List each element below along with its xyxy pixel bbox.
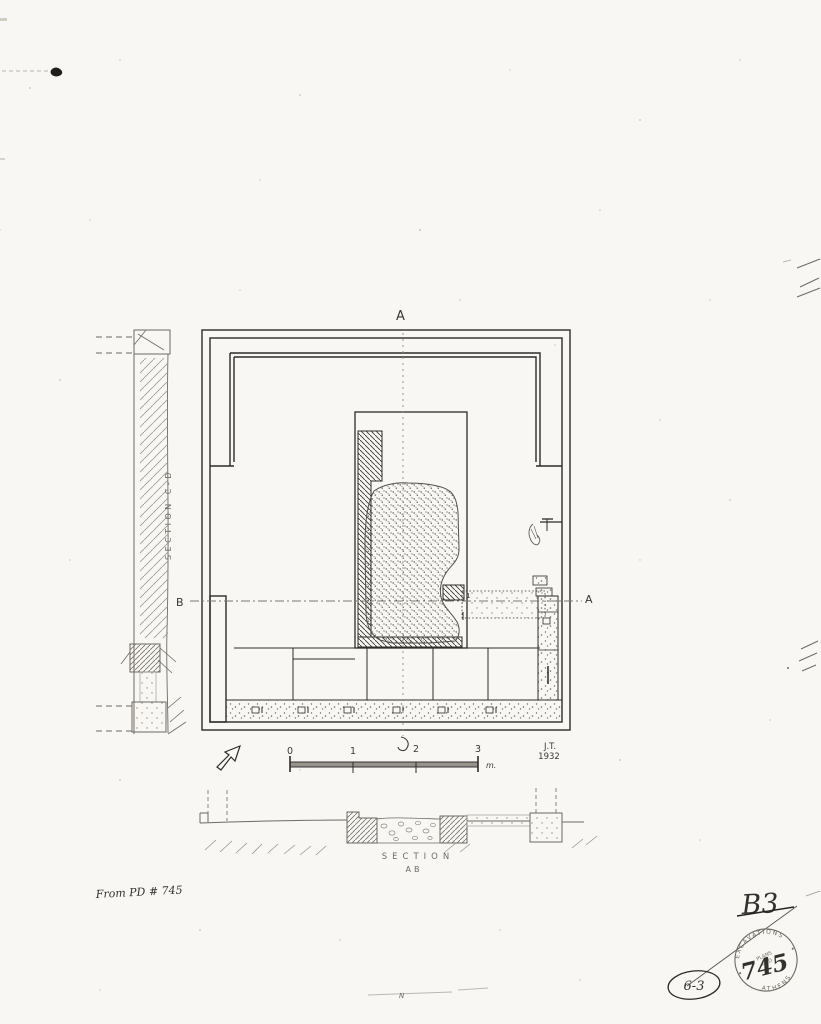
bottom-section-title: SECTION [382, 852, 454, 862]
circled-code-text: 6-3 [684, 979, 705, 994]
north-arrow-icon [217, 746, 240, 770]
hatched-notch [443, 585, 464, 600]
n-mark: N [399, 992, 405, 1000]
rubble-fill [381, 821, 435, 840]
source-note: From PD # 745 [94, 883, 182, 901]
scale-tick-1: 1 [350, 746, 356, 757]
bottom-section-subtitle: AB [406, 865, 423, 874]
drawing-year: 1932 [538, 752, 560, 762]
scale-tick-3: 3 [475, 744, 481, 755]
page-code: B3 [740, 888, 780, 921]
scale-tick-0: 0 [287, 746, 293, 757]
restored-block-outline [462, 591, 545, 618]
floor-slabs [234, 648, 540, 700]
plumb-hook-icon [398, 737, 408, 751]
small-block-a [533, 576, 547, 585]
bedrock-outcrop [365, 483, 459, 643]
scanned-drawing-page: 1 A B A [0, 0, 821, 1024]
signature: J.T. 1932 [538, 742, 560, 762]
central-monument [355, 412, 467, 648]
scale-bar: 0 1 2 3 m. [287, 744, 496, 773]
bottom-fold-mark: N [368, 988, 488, 1000]
author-initials: J.T. [543, 742, 556, 752]
left-section-drawing: SECTION C-D [96, 330, 186, 734]
circled-code: 6-3 [666, 968, 721, 1002]
section-label-a-top: A [396, 309, 405, 324]
east-wall-detail [529, 519, 562, 545]
scale-unit: m. [486, 761, 496, 770]
bottom-section-drawing: SECTION AB [200, 788, 597, 874]
section-label-a-right: A [585, 593, 593, 606]
left-section-title: SECTION C-D [164, 469, 173, 560]
socket-hole [543, 618, 550, 624]
scale-tick-2: 2 [413, 744, 419, 755]
section-label-b-left: B [176, 596, 184, 609]
margin-pencil-marks [783, 259, 820, 896]
plan-drawing: 1 A B A [176, 309, 593, 751]
